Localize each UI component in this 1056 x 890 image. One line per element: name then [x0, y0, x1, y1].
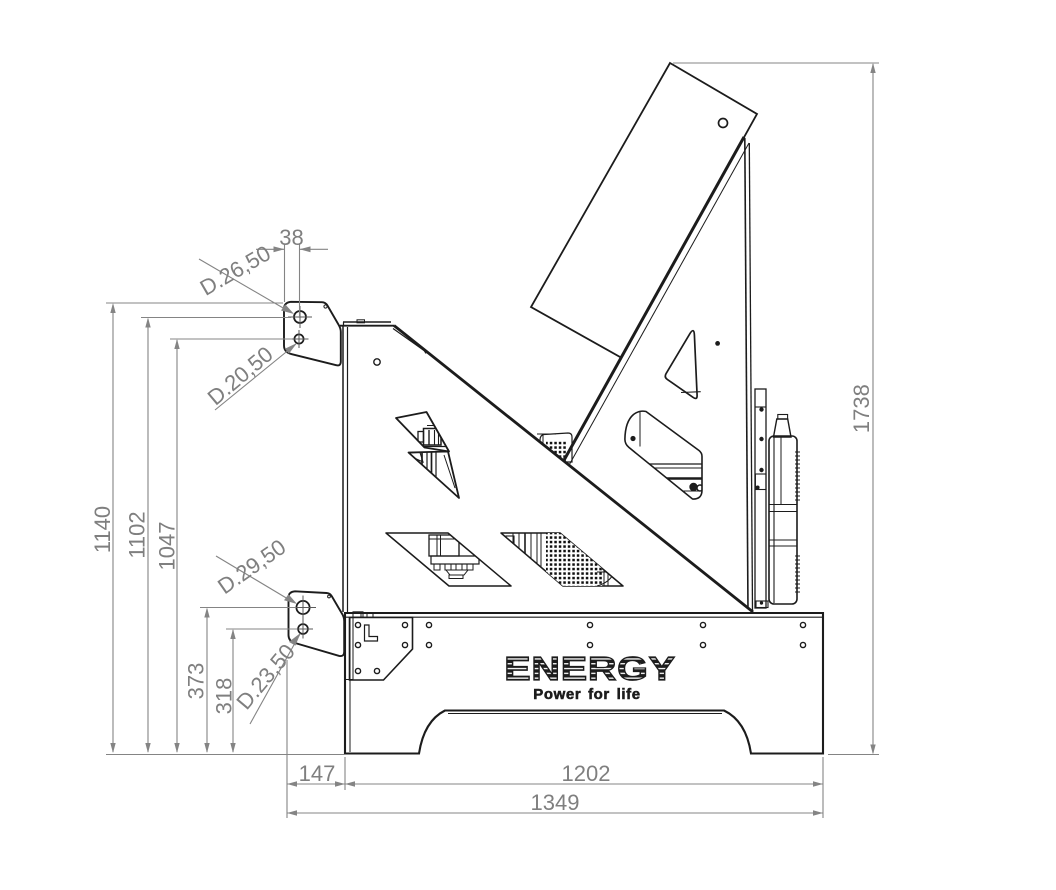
- svg-text:1738: 1738: [849, 384, 874, 433]
- svg-text:373: 373: [184, 663, 209, 700]
- svg-text:147: 147: [299, 761, 336, 786]
- svg-text:1047: 1047: [155, 522, 180, 571]
- svg-text:38: 38: [279, 225, 303, 250]
- svg-text:1140: 1140: [90, 506, 115, 553]
- svg-text:1102: 1102: [125, 511, 150, 558]
- svg-text:Power for life: Power for life: [533, 686, 640, 703]
- svg-text:ENERGY: ENERGY: [504, 650, 676, 687]
- svg-text:1349: 1349: [531, 790, 580, 815]
- svg-text:1202: 1202: [562, 761, 611, 786]
